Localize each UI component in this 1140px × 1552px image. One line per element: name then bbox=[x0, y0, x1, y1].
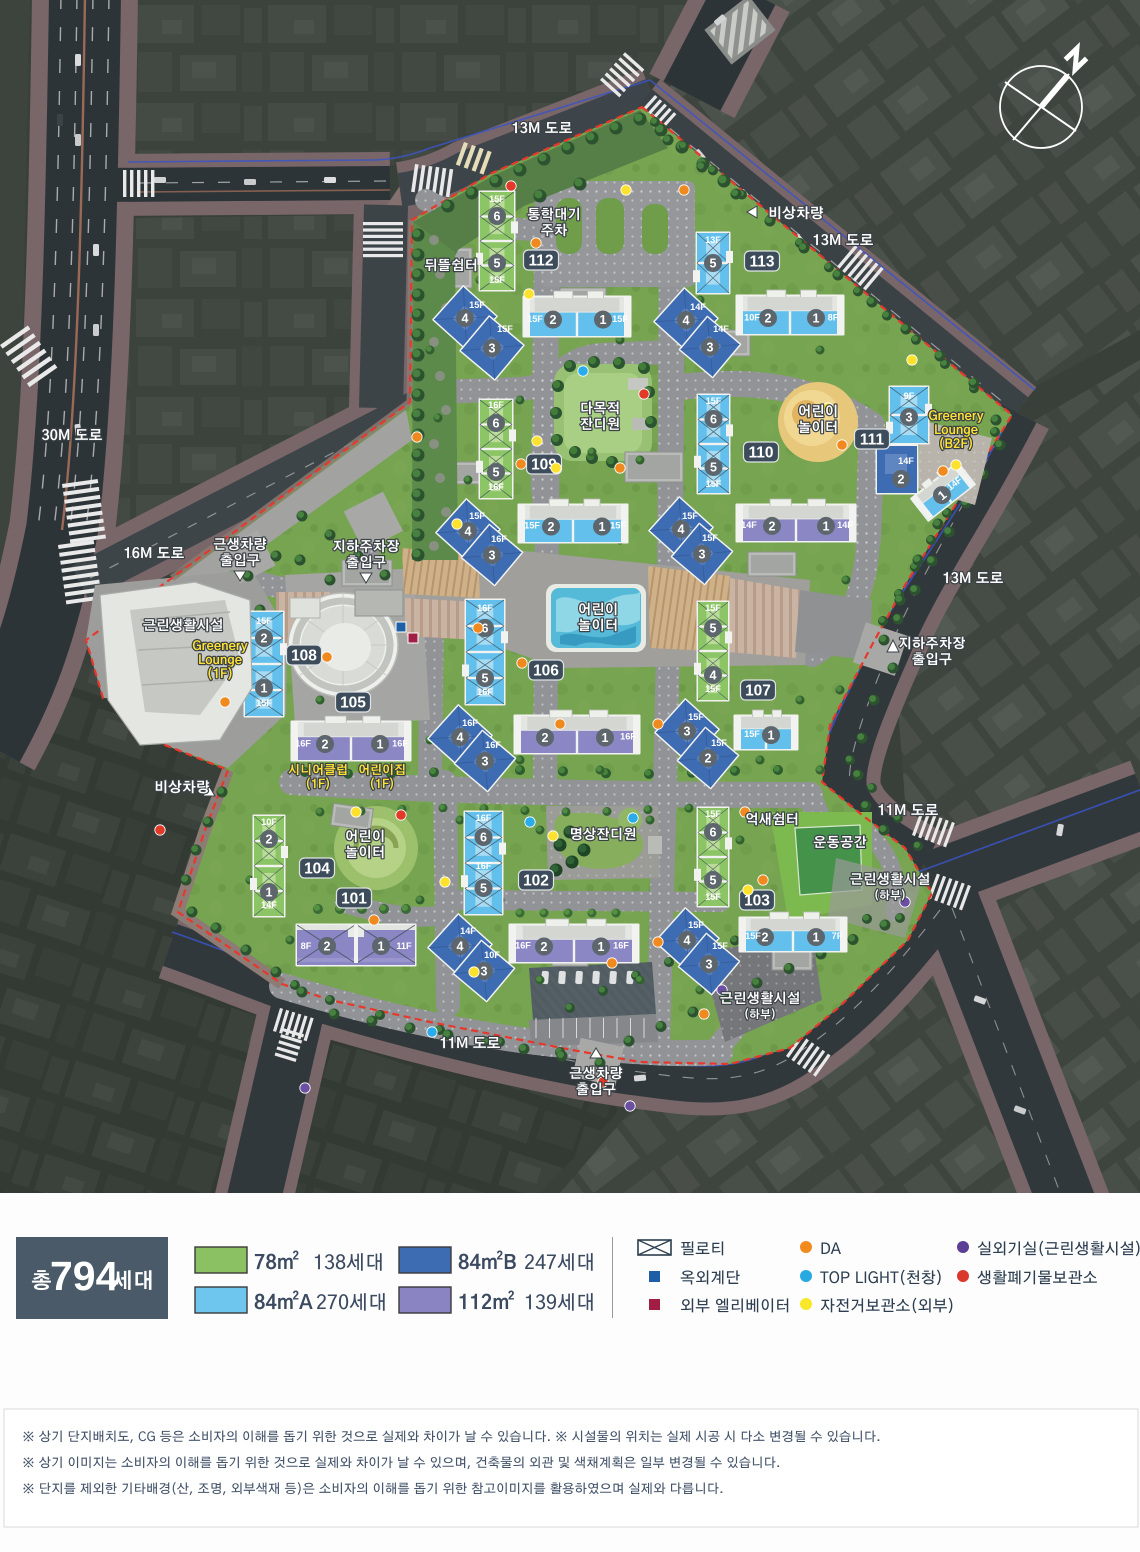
svg-text:4: 4 bbox=[465, 525, 472, 539]
svg-text:2: 2 bbox=[550, 313, 557, 327]
svg-text:1: 1 bbox=[600, 313, 607, 327]
svg-text:106: 106 bbox=[533, 663, 559, 680]
svg-text:16F: 16F bbox=[392, 738, 408, 748]
svg-text:15F: 15F bbox=[612, 314, 628, 324]
svg-text:3: 3 bbox=[481, 965, 488, 979]
svg-text:15F: 15F bbox=[702, 533, 718, 543]
svg-text:8F: 8F bbox=[301, 941, 312, 951]
svg-text:14F: 14F bbox=[837, 520, 853, 530]
svg-text:2: 2 bbox=[898, 473, 905, 487]
svg-text:15F: 15F bbox=[489, 194, 505, 204]
svg-text:2: 2 bbox=[261, 632, 268, 646]
svg-text:15F: 15F bbox=[256, 698, 272, 708]
svg-text:14F: 14F bbox=[713, 324, 729, 334]
svg-text:112: 112 bbox=[528, 253, 553, 270]
svg-text:2: 2 bbox=[765, 312, 772, 326]
svg-text:3: 3 bbox=[489, 342, 496, 356]
svg-text:1: 1 bbox=[378, 940, 385, 954]
svg-text:4: 4 bbox=[457, 731, 464, 745]
svg-text:15F: 15F bbox=[705, 809, 721, 819]
svg-text:16F: 16F bbox=[477, 603, 493, 613]
svg-text:15F: 15F bbox=[705, 892, 721, 902]
svg-text:5: 5 bbox=[710, 461, 717, 475]
svg-text:2: 2 bbox=[322, 738, 329, 752]
svg-text:16F: 16F bbox=[295, 738, 311, 748]
svg-text:16F: 16F bbox=[491, 534, 507, 544]
svg-text:1: 1 bbox=[813, 931, 820, 945]
svg-text:1: 1 bbox=[602, 731, 609, 745]
svg-text:15F: 15F bbox=[744, 729, 760, 739]
svg-text:15F: 15F bbox=[705, 684, 721, 694]
svg-text:2: 2 bbox=[266, 833, 273, 847]
svg-text:16F: 16F bbox=[477, 687, 493, 697]
svg-text:3: 3 bbox=[489, 549, 496, 563]
svg-text:2: 2 bbox=[548, 520, 555, 534]
svg-text:9F: 9F bbox=[904, 391, 915, 401]
svg-text:16F: 16F bbox=[613, 941, 629, 951]
svg-text:5: 5 bbox=[710, 874, 717, 888]
svg-text:15F: 15F bbox=[706, 479, 722, 489]
svg-text:5: 5 bbox=[480, 882, 487, 896]
svg-text:15F: 15F bbox=[688, 712, 704, 722]
svg-text:1: 1 bbox=[261, 682, 268, 696]
svg-text:16F: 16F bbox=[488, 400, 504, 410]
svg-text:3: 3 bbox=[699, 548, 706, 562]
svg-text:8F: 8F bbox=[828, 312, 839, 322]
svg-text:2: 2 bbox=[705, 752, 712, 766]
svg-text:1: 1 bbox=[598, 940, 605, 954]
svg-text:2: 2 bbox=[762, 931, 769, 945]
svg-text:111: 111 bbox=[860, 432, 885, 449]
svg-text:5: 5 bbox=[710, 622, 717, 636]
svg-text:10F: 10F bbox=[744, 312, 760, 322]
svg-text:15F: 15F bbox=[256, 616, 272, 626]
svg-text:108: 108 bbox=[291, 648, 317, 665]
svg-text:5: 5 bbox=[493, 466, 500, 480]
svg-text:16F: 16F bbox=[476, 861, 492, 871]
svg-text:15F: 15F bbox=[712, 941, 728, 951]
svg-text:15F: 15F bbox=[489, 275, 505, 285]
svg-text:15F: 15F bbox=[469, 511, 485, 521]
svg-text:15F: 15F bbox=[497, 324, 513, 334]
svg-text:14F: 14F bbox=[741, 520, 757, 530]
svg-text:105: 105 bbox=[340, 695, 366, 712]
svg-text:4: 4 bbox=[683, 314, 690, 328]
svg-text:5: 5 bbox=[482, 672, 489, 686]
svg-text:5: 5 bbox=[710, 257, 717, 271]
svg-text:4: 4 bbox=[462, 312, 469, 326]
svg-text:6: 6 bbox=[480, 831, 487, 845]
svg-text:1: 1 bbox=[813, 312, 820, 326]
svg-text:14F: 14F bbox=[460, 926, 476, 936]
svg-text:1: 1 bbox=[377, 738, 384, 752]
svg-text:1: 1 bbox=[823, 519, 830, 533]
svg-text:7F: 7F bbox=[832, 931, 843, 941]
svg-text:1: 1 bbox=[599, 520, 606, 534]
svg-text:3: 3 bbox=[707, 341, 714, 355]
svg-text:2: 2 bbox=[324, 940, 331, 954]
svg-text:13F: 13F bbox=[705, 235, 721, 245]
svg-text:15F: 15F bbox=[527, 314, 543, 324]
svg-text:15F: 15F bbox=[682, 511, 698, 521]
svg-text:107: 107 bbox=[745, 683, 771, 700]
svg-text:14F: 14F bbox=[261, 900, 277, 910]
svg-text:14F: 14F bbox=[690, 302, 706, 312]
svg-text:110: 110 bbox=[748, 445, 773, 462]
svg-text:101: 101 bbox=[341, 891, 367, 908]
svg-text:4: 4 bbox=[678, 523, 685, 537]
svg-text:4: 4 bbox=[684, 934, 691, 948]
svg-text:113: 113 bbox=[749, 254, 774, 271]
svg-text:15F: 15F bbox=[705, 603, 721, 613]
svg-text:16F: 16F bbox=[462, 718, 478, 728]
svg-text:16F: 16F bbox=[620, 732, 636, 742]
svg-text:16F: 16F bbox=[488, 482, 504, 492]
svg-text:10F: 10F bbox=[261, 817, 277, 827]
svg-text:16F: 16F bbox=[515, 941, 531, 951]
svg-text:16F: 16F bbox=[485, 740, 501, 750]
svg-text:10F: 10F bbox=[484, 950, 500, 960]
svg-text:4: 4 bbox=[457, 940, 464, 954]
svg-text:3: 3 bbox=[906, 411, 913, 425]
svg-text:794: 794 bbox=[50, 1253, 119, 1299]
svg-text:102: 102 bbox=[523, 873, 549, 890]
svg-text:15F: 15F bbox=[610, 521, 626, 531]
svg-text:15F: 15F bbox=[688, 920, 704, 930]
svg-text:3: 3 bbox=[684, 725, 691, 739]
svg-text:2: 2 bbox=[542, 731, 549, 745]
svg-text:15F: 15F bbox=[524, 521, 540, 531]
svg-text:1: 1 bbox=[266, 886, 273, 900]
svg-text:1: 1 bbox=[768, 729, 775, 743]
svg-text:104: 104 bbox=[304, 861, 330, 878]
svg-text:6: 6 bbox=[710, 826, 717, 840]
svg-text:15F: 15F bbox=[711, 738, 727, 748]
svg-text:16F: 16F bbox=[476, 813, 492, 823]
svg-text:14F: 14F bbox=[898, 456, 914, 466]
svg-text:2: 2 bbox=[769, 519, 776, 533]
svg-text:15F: 15F bbox=[745, 931, 761, 941]
svg-text:3: 3 bbox=[706, 958, 713, 972]
svg-text:6: 6 bbox=[493, 417, 500, 431]
svg-text:4: 4 bbox=[710, 669, 717, 683]
svg-text:6: 6 bbox=[710, 413, 717, 427]
svg-text:6: 6 bbox=[494, 210, 501, 224]
svg-text:5: 5 bbox=[494, 257, 501, 271]
svg-text:3: 3 bbox=[482, 755, 489, 769]
svg-text:15F: 15F bbox=[469, 300, 485, 310]
svg-text:15F: 15F bbox=[706, 396, 722, 406]
svg-text:11F: 11F bbox=[396, 941, 412, 951]
svg-text:2: 2 bbox=[541, 940, 548, 954]
